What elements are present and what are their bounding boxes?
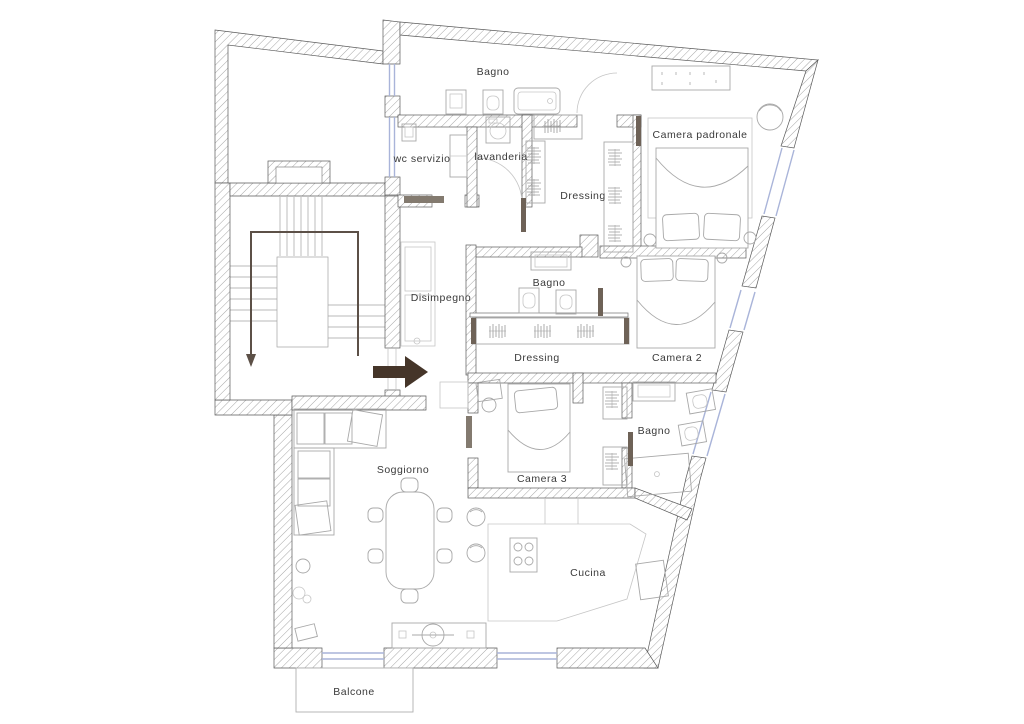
room-label-bagno-camera-3: Bagno bbox=[638, 425, 671, 437]
room-label-bagno-centrale: Bagno bbox=[533, 277, 566, 289]
room-label-camera-2: Camera 2 bbox=[652, 352, 702, 364]
camera-2-furniture bbox=[621, 253, 727, 348]
floor-plan-svg: Bagno Camera padronale wc servizio lavan… bbox=[0, 0, 1024, 724]
paper-background bbox=[0, 0, 1024, 724]
room-label-wc-servizio: wc servizio bbox=[393, 153, 451, 165]
radiator-icon bbox=[404, 196, 444, 203]
room-label-dressing-padronale: Dressing bbox=[560, 190, 605, 202]
room-label-camera-padronale: Camera padronale bbox=[653, 129, 748, 141]
room-label-disimpegno: Disimpegno bbox=[411, 292, 471, 304]
room-label-lavanderia: lavanderia bbox=[474, 151, 527, 163]
single-bed-icon bbox=[508, 384, 570, 472]
room-label-soggiorno: Soggiorno bbox=[377, 464, 429, 476]
floor-plan-canvas: Bagno Camera padronale wc servizio lavan… bbox=[0, 0, 1024, 724]
double-bed-icon bbox=[637, 256, 715, 348]
room-label-balcone: Balcone bbox=[333, 686, 374, 698]
room-label-cucina: Cucina bbox=[570, 567, 606, 579]
double-bed-icon bbox=[656, 148, 748, 248]
room-label-dressing-notte: Dressing bbox=[514, 352, 559, 364]
radiator-icon bbox=[466, 416, 472, 448]
room-label-bagno-top: Bagno bbox=[477, 66, 510, 78]
room-label-camera-3: Camera 3 bbox=[517, 473, 567, 485]
